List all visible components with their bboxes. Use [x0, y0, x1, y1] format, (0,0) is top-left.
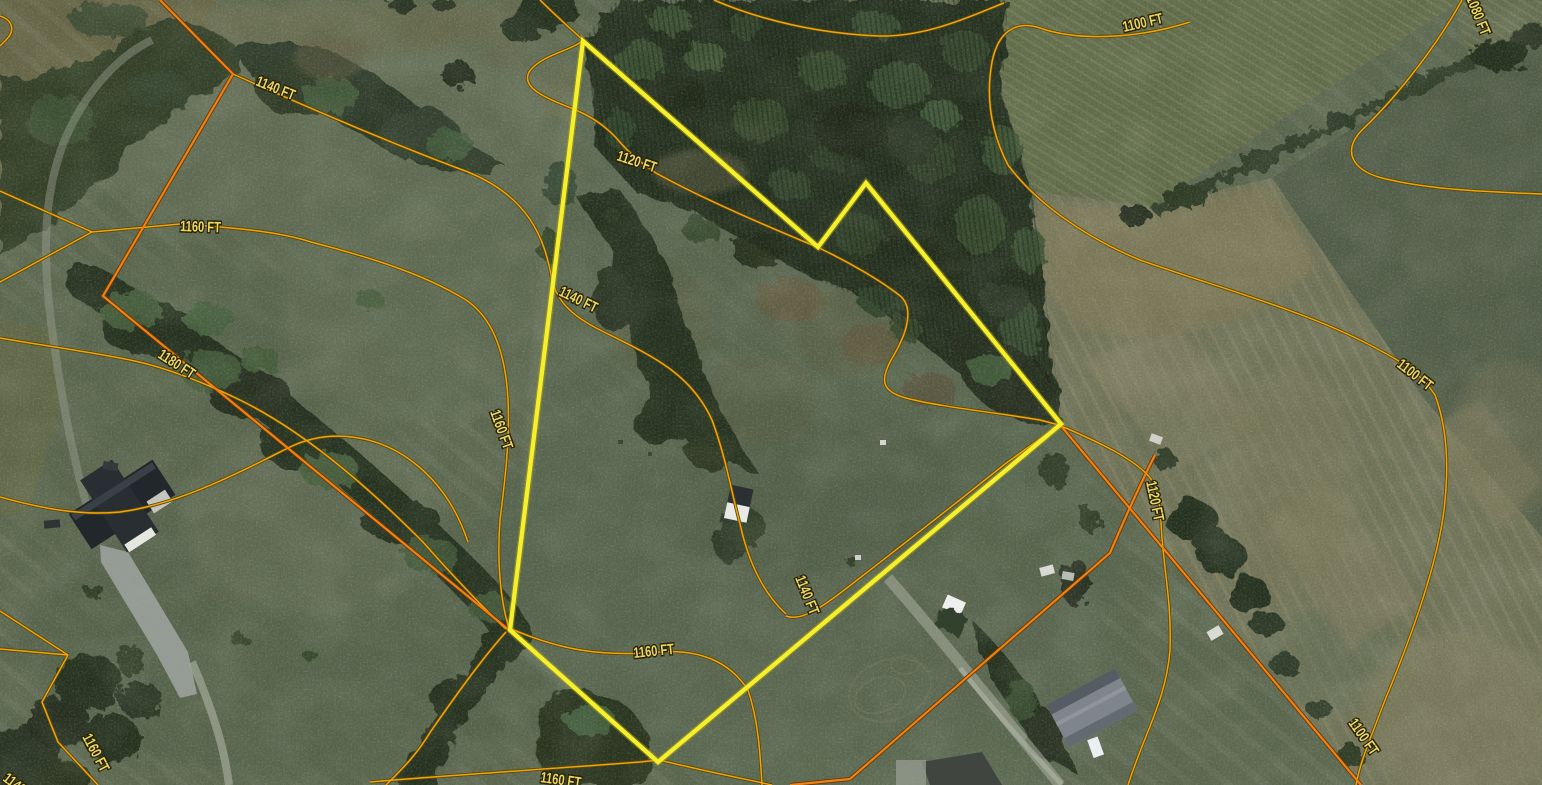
- svg-text:1160 FT: 1160 FT: [180, 217, 221, 235]
